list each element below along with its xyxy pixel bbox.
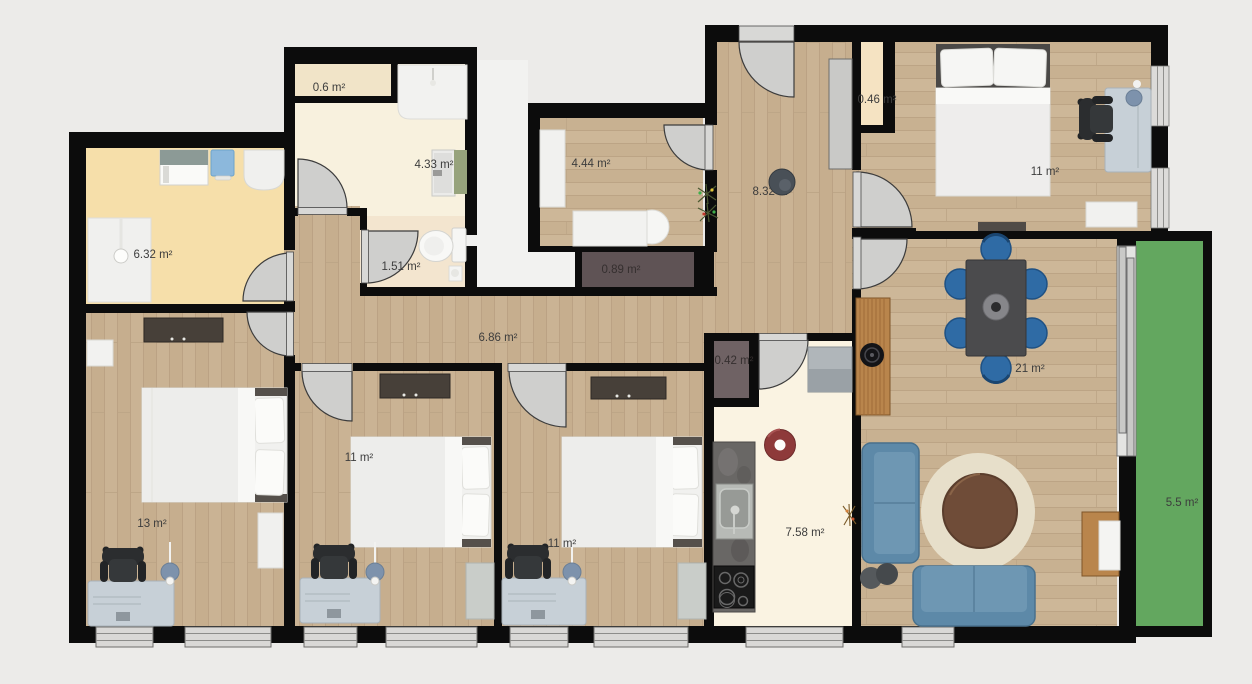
svg-text:0.89 m²: 0.89 m² [602, 264, 641, 276]
svg-text:6.32 m²: 6.32 m² [134, 249, 173, 261]
svg-text:0.42 m²: 0.42 m² [715, 355, 754, 367]
svg-text:7.58 m²: 7.58 m² [786, 527, 825, 539]
svg-text:4.33 m²: 4.33 m² [415, 159, 454, 171]
svg-text:1.51 m²: 1.51 m² [382, 261, 421, 273]
svg-text:11 m²: 11 m² [548, 538, 577, 550]
svg-text:5.5 m²: 5.5 m² [1166, 497, 1199, 509]
svg-text:13 m²: 13 m² [137, 518, 167, 530]
svg-text:0.6 m²: 0.6 m² [313, 82, 346, 94]
svg-text:4.44 m²: 4.44 m² [572, 158, 611, 170]
svg-text:0.46 m²: 0.46 m² [858, 94, 897, 106]
svg-text:6.86 m²: 6.86 m² [479, 332, 518, 344]
svg-text:11 m²: 11 m² [1031, 166, 1060, 178]
svg-text:21 m²: 21 m² [1015, 363, 1045, 375]
svg-text:11 m²: 11 m² [345, 452, 374, 464]
